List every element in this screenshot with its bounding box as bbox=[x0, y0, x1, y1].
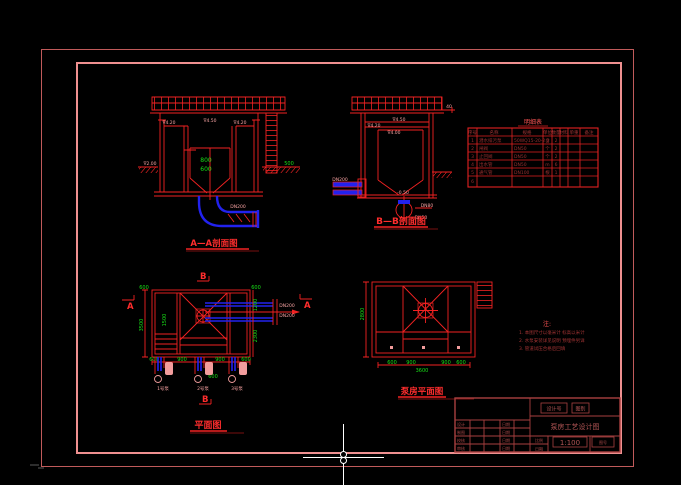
dimension-text: 600 bbox=[139, 285, 149, 291]
pump-unit: 1号泵 bbox=[155, 357, 174, 392]
notes: 注: 1. 本图尺寸以毫米计 标高以米计 2. 水泵安装详见说明 预埋件另详 3… bbox=[519, 320, 585, 352]
table-cell: 台 bbox=[545, 137, 550, 144]
dimension-text: 900 bbox=[215, 357, 225, 363]
table-header: 名称 bbox=[490, 129, 499, 136]
dimension-text: 600 bbox=[200, 166, 212, 173]
pump-unit: 3号泵 bbox=[229, 357, 248, 392]
pump-label: 2号泵 bbox=[197, 386, 209, 392]
dimension-text: 600 bbox=[251, 285, 261, 291]
signature-date: 日期 bbox=[502, 437, 510, 443]
pipe-hatch bbox=[228, 212, 256, 227]
dimension-text: 3600 bbox=[416, 368, 429, 374]
parts-table: 明细表 序号 名称 规格 单位 数量 材料 单重 备注 1 潜水排污泵 50WQ… bbox=[468, 118, 598, 187]
table-cell: 个 bbox=[545, 154, 550, 160]
title-block: 设计号 图别 泵房工艺设计图 比例 1:100 图号 日期 设计 制图 校核 审… bbox=[455, 398, 620, 452]
dimension-text: 2300 bbox=[253, 330, 259, 343]
note-line: 1. 本图尺寸以毫米计 标高以米计 bbox=[519, 329, 585, 336]
date-label: 日期 bbox=[535, 446, 543, 452]
table-cell: 个 bbox=[545, 146, 550, 152]
floor-slab bbox=[154, 192, 263, 196]
dimension-line bbox=[363, 282, 470, 368]
deck-grating bbox=[352, 97, 442, 110]
section-aa-label: A—A剖面图 bbox=[190, 238, 237, 249]
signature-label: 校核 bbox=[457, 437, 465, 443]
dimension-text: ∇4.00 bbox=[386, 130, 400, 136]
table-cell: 2 bbox=[471, 146, 474, 152]
table-header: 单重 bbox=[570, 129, 579, 136]
table-cell: 5 bbox=[471, 170, 474, 176]
parts-table-title: 明细表 bbox=[524, 118, 542, 126]
titleblock-field: 图别 bbox=[575, 406, 585, 413]
dimension-text: 1500 bbox=[162, 314, 168, 327]
table-header: 序号 bbox=[468, 129, 477, 136]
dimension-text: 900 bbox=[406, 360, 416, 366]
table-cell: 通气管 bbox=[479, 169, 493, 176]
signature-label: 制图 bbox=[457, 429, 465, 435]
table-cell: 2 bbox=[555, 146, 558, 152]
table-header: 规格 bbox=[523, 129, 532, 136]
roof-x-bracing bbox=[180, 293, 227, 345]
table-cell: 2 bbox=[555, 138, 558, 144]
pump-label: 3号泵 bbox=[231, 386, 243, 392]
crosshair-cursor[interactable] bbox=[303, 424, 384, 485]
table-cell: 3 bbox=[471, 154, 474, 160]
deck-grating bbox=[152, 97, 285, 110]
table-cell: 根 bbox=[545, 169, 550, 176]
section-marker-b: B bbox=[200, 272, 206, 282]
section-b-b: ∇4.50 ∇4.20 ∇4.00 DN200 -0.50 DN80 DN50 … bbox=[332, 97, 455, 229]
signature-label: 审核 bbox=[457, 445, 465, 451]
suction-pipe bbox=[199, 196, 258, 228]
dimension-text: ∇4.20 bbox=[232, 120, 246, 126]
dimension-text: ∇2.00 bbox=[142, 161, 156, 167]
scale-label: 比例 bbox=[535, 437, 543, 443]
section-marker-a: A bbox=[127, 302, 134, 312]
note-line: 2. 水泵安装详见说明 预埋件另详 bbox=[519, 337, 585, 344]
titleblock-field: 设计号 bbox=[546, 406, 561, 413]
dimension-text: 900 bbox=[441, 360, 451, 366]
dimension-text: 900 bbox=[177, 357, 187, 363]
signature-label: 设计 bbox=[457, 421, 465, 427]
dimension-text: DN200 bbox=[230, 204, 246, 210]
scale-value: 1:100 bbox=[560, 439, 580, 447]
pump-label: 1号泵 bbox=[157, 386, 169, 392]
dimension-text: -0.50 bbox=[397, 190, 409, 196]
cad-linework: ∇4.50 ∇4.20 ∇4.20 ∇2.00 DN200 800 600 50… bbox=[0, 0, 681, 485]
table-cell: 2 bbox=[555, 154, 558, 160]
dimension-text: ∇4.20 bbox=[366, 123, 380, 129]
signature-date: 日期 bbox=[502, 429, 510, 435]
pump-unit: 2号泵 bbox=[195, 357, 214, 392]
dimension-text: 2800 bbox=[360, 308, 366, 321]
table-cell: 1 bbox=[471, 138, 474, 144]
cad-drawing-canvas[interactable]: ∇4.50 ∇4.20 ∇4.20 ∇2.00 DN200 800 600 50… bbox=[0, 0, 681, 485]
dimension-text: 40 bbox=[446, 104, 452, 110]
table-cell: 闸阀 bbox=[479, 145, 488, 152]
table-cell: 出水管 bbox=[479, 161, 493, 168]
ladder-icon bbox=[477, 282, 492, 308]
dimension-text: 800 bbox=[200, 157, 212, 164]
table-cell: 潜水排污泵 bbox=[479, 137, 502, 144]
dimension-text: 3500 bbox=[139, 319, 145, 332]
drawing-title: 泵房工艺设计图 bbox=[551, 422, 600, 431]
plan-view: A A B B 600 600 1200 2300 3500 1500 600 … bbox=[122, 272, 312, 433]
notes-title: 注: bbox=[543, 320, 551, 328]
table-cell: DN50 bbox=[514, 154, 527, 160]
section-marker-b: B bbox=[202, 395, 208, 405]
table-cell: DN100 bbox=[514, 170, 530, 176]
roof-plan: 600 900 900 600 3600 2800 泵房平面图 bbox=[360, 282, 492, 399]
dimension-text: 600 bbox=[387, 360, 397, 366]
dimension-text: ∇4.50 bbox=[391, 117, 405, 123]
plan-label: 平面图 bbox=[194, 420, 221, 431]
drawing-no-label: 图号 bbox=[599, 439, 607, 445]
table-header: 材料 bbox=[560, 129, 569, 136]
roof-plan-label: 泵房平面图 bbox=[401, 386, 444, 397]
dimension-text: 1200 bbox=[253, 299, 259, 312]
dimension-text: DN200 bbox=[332, 177, 348, 183]
dimension-text: ∇4.20 bbox=[161, 120, 175, 126]
stairs bbox=[155, 334, 177, 349]
section-a-a: ∇4.50 ∇4.20 ∇4.20 ∇2.00 DN200 800 600 50… bbox=[138, 97, 300, 251]
dimension-text: ∇4.50 bbox=[202, 118, 216, 124]
table-cell: 4 bbox=[471, 162, 474, 168]
table-cell: DN50 bbox=[514, 162, 527, 168]
table-cell: 6 bbox=[555, 162, 558, 168]
dimension-text: 600 bbox=[456, 360, 466, 366]
section-bb-label: B—B剖面图 bbox=[376, 215, 426, 227]
screen-artifact bbox=[30, 465, 44, 468]
signature-date: 日期 bbox=[502, 445, 510, 451]
ladder-icon bbox=[266, 113, 277, 173]
dimension-text: 500 bbox=[284, 161, 294, 167]
table-cell: 止回阀 bbox=[479, 153, 493, 160]
signature-date: 日期 bbox=[502, 421, 510, 427]
table-cell: DN50 bbox=[514, 146, 527, 152]
inner-hopper bbox=[378, 130, 423, 195]
note-line: 3. 管道试压合格后回填 bbox=[519, 345, 566, 352]
dimension-text: DN200 bbox=[279, 303, 295, 309]
dimension-text: DN80 bbox=[421, 203, 434, 209]
table-cell: 1 bbox=[555, 170, 558, 176]
dimension-text: DN200 bbox=[279, 313, 295, 319]
table-header: 备注 bbox=[585, 129, 594, 136]
table-cell: m bbox=[545, 163, 549, 168]
table-cell: 6 bbox=[471, 179, 474, 185]
section-marker-a: A bbox=[304, 301, 311, 311]
